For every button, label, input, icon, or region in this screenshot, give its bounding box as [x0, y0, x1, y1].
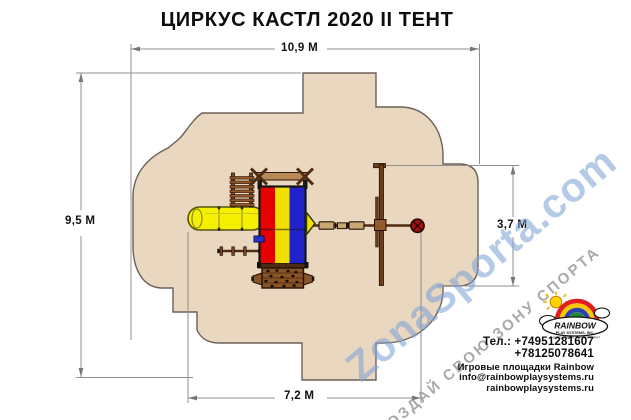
climbing-net	[230, 173, 254, 207]
tent-canopy	[257, 180, 309, 268]
blue-step	[254, 236, 264, 242]
logo-name: RAINBOW	[554, 321, 597, 331]
dim-label-overall-height: 9,5 М	[62, 215, 98, 227]
phone-primary: Тел.: +74951281607	[458, 337, 594, 349]
dim-label-lower-width: 7,2 М	[281, 390, 317, 402]
rainbow-logo: RAINBOW PLAY SYSTEMS, INC. THE RESIDENTI…	[537, 290, 613, 342]
page-title: ЦИРКУС КАСТЛ 2020 II ТЕНТ	[0, 9, 614, 32]
cloud-puff-right	[595, 308, 610, 318]
contact-site: rainbowplaysystems.ru	[458, 384, 594, 394]
tube-slide	[188, 206, 264, 230]
logo-subtitle: PLAY SYSTEMS, INC.	[556, 331, 595, 335]
dim-label-overall-width: 10,9 М	[278, 42, 321, 54]
phone-secondary: +78125078641	[458, 349, 594, 361]
contact-block: Тел.: +74951281607 +78125078641 Игровые …	[458, 337, 594, 394]
plan-sheet: ЦИРКУС КАСТЛ 2020 II ТЕНТ	[0, 0, 631, 420]
tire-swing	[411, 219, 424, 232]
